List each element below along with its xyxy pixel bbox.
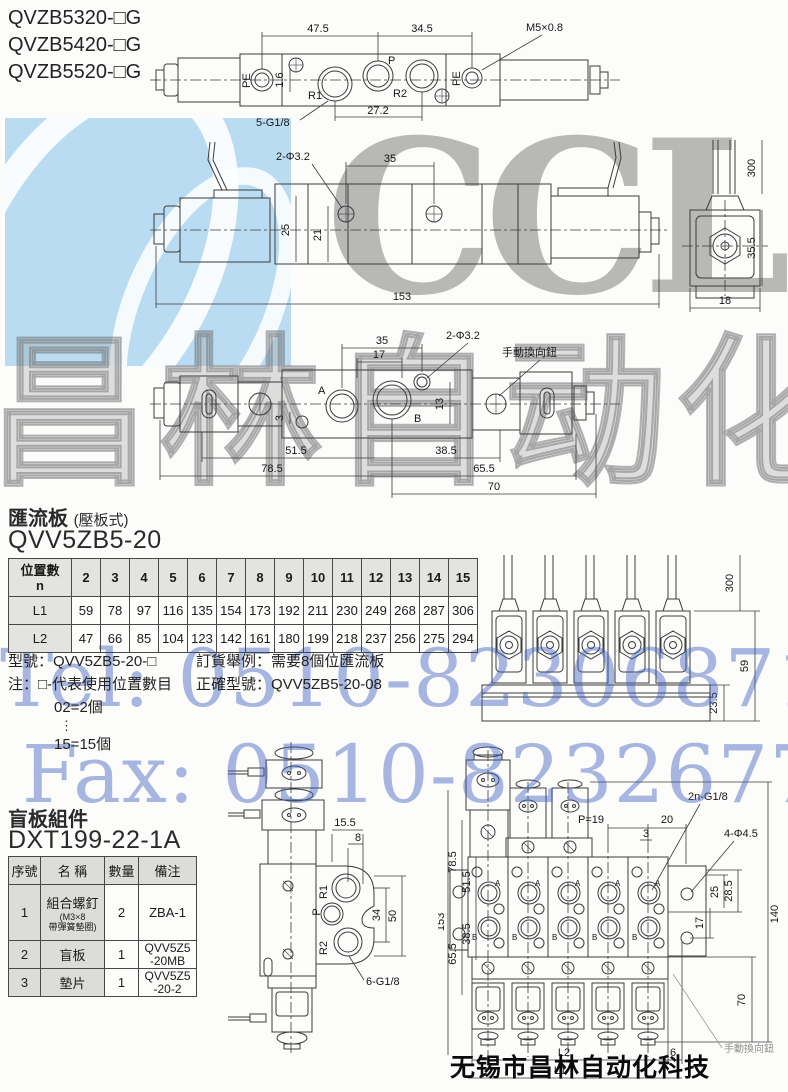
dim-label: 47.5 xyxy=(307,23,328,35)
port-label: B xyxy=(512,933,517,942)
port-label: B xyxy=(552,933,557,942)
dim-label: 65.5 xyxy=(447,943,459,964)
part-remark: -20-2 xyxy=(139,983,196,996)
order-example: 訂貨舉例：需要8個位匯流板 xyxy=(196,650,384,673)
dim-label: 17 xyxy=(373,349,385,361)
blank-plate-model: DXT199-22-1A xyxy=(8,826,181,855)
dim-label: 8 xyxy=(355,832,361,844)
dim-label: 27.2 xyxy=(367,105,388,117)
order-model: 正確型號：QVV5ZB5-20-08 xyxy=(196,673,384,696)
holes-label: 2-Φ3.2 xyxy=(276,151,310,163)
dim-label: 25 xyxy=(280,224,292,236)
holes-label: 2-Φ3.2 xyxy=(446,330,480,342)
port-label: A xyxy=(575,879,581,888)
port-label: R1 xyxy=(308,90,322,102)
dim-label: 140 xyxy=(769,905,781,923)
dim-label: 1.6 xyxy=(274,72,286,87)
dim-label: 51.5 xyxy=(285,445,306,457)
dim-label: 300 xyxy=(746,159,758,177)
model-name: QVZB5520-□G xyxy=(8,59,141,86)
dim-label: 300 xyxy=(724,574,736,592)
corner-header-cell: 位置數 n xyxy=(9,559,72,597)
dim-label: 28.5 xyxy=(723,880,735,901)
port-label: PE xyxy=(451,71,463,86)
port-label: A xyxy=(535,879,541,888)
table-row: 1 組合螺釘 (M3×8 帶彈簧墊圈) 2 ZBA-1 xyxy=(9,885,197,941)
dim-label: 38.5 xyxy=(435,445,456,457)
manual-override-label: 手動換向鈕 xyxy=(724,1042,774,1055)
dim-label: 51.5 xyxy=(461,871,473,892)
dim-label: 50 xyxy=(387,910,399,922)
ordering-notes-right: 訂貨舉例：需要8個位匯流板 正確型號：QVV5ZB5-20-08 xyxy=(196,650,384,696)
port-label: R2 xyxy=(393,88,407,100)
port-label: A xyxy=(615,879,621,888)
dim-label: 34.5 xyxy=(411,23,432,35)
port-label: A xyxy=(495,879,501,888)
port-label: PE xyxy=(241,73,253,88)
blank-plate-table: 序號 名 稱 數量 備注 1 組合螺釘 (M3×8 帶彈簧墊圈) 2 ZBA-1… xyxy=(8,856,197,997)
table-row: 3 墊片 1 QVV5Z5 -20-2 xyxy=(9,969,197,997)
part-name-sub: 帶彈簧墊圈) xyxy=(41,922,104,932)
table-row-l2: L2 47 66 85 104 123 142 161 180 199 218 … xyxy=(9,625,478,653)
dim-label: 3 xyxy=(643,828,649,840)
ports-label: 6-G1/8 xyxy=(366,976,400,988)
dim-label: 25 xyxy=(709,886,721,898)
manifold-model: QVV5ZB5-20 xyxy=(8,526,162,555)
dim-label: 70 xyxy=(736,994,748,1006)
dim-label: 21 xyxy=(312,229,324,241)
dim-label: 18 xyxy=(719,295,731,307)
valve-bottom-view-drawing: A B 35 17 2-Φ3.2 手動換向鈕 3 13 51.5 38.5 78… xyxy=(150,328,628,506)
model-list: QVZB5320-□G QVZB5420-□G QVZB5520-□G xyxy=(8,5,141,86)
dim-label: 153 xyxy=(438,913,447,931)
model-name: QVZB5320-□G xyxy=(8,5,141,32)
dim-label: 38.5 xyxy=(461,923,473,944)
part-name: 組合螺釘 xyxy=(46,896,98,911)
dim-label: 65.5 xyxy=(473,463,494,475)
part-remark: -20MB xyxy=(139,955,196,968)
part-remark: QVV5Z5 xyxy=(139,970,196,983)
holes-label: 4-Φ4.5 xyxy=(724,828,758,840)
table-header-row: 位置數 n 2 3 4 5 6 7 8 9 10 11 12 13 14 15 xyxy=(9,559,478,597)
note-line: 02=2個 xyxy=(54,696,172,719)
note-line: 15=15個 xyxy=(54,733,172,756)
note-dots: ⋮ xyxy=(60,719,172,733)
valve-top-view-drawing: PE R1 P R2 PE 47.5 34.5 M5×0.8 1.6 5-G1/… xyxy=(150,18,620,130)
valve-side-view-drawing: 35 2-Φ3.2 25 21 153 300 35.5 18 xyxy=(150,138,782,320)
port-label: P xyxy=(311,908,323,915)
dim-label: 35 xyxy=(376,335,388,347)
note-model: 型號：QVV5ZB5-20-□ xyxy=(8,650,172,673)
table-row: 2 盲板 1 QVV5Z5 -20MB xyxy=(9,941,197,969)
ports-label: 5-G1/8 xyxy=(256,117,290,129)
table-row-l1: L1 59 78 97 116 135 154 173 192 211 230 … xyxy=(9,597,478,625)
port-label: R2 xyxy=(318,941,330,955)
port-label: B xyxy=(414,413,421,425)
dim-label: 34 xyxy=(371,909,383,921)
table-header-row: 序號 名 稱 數量 備注 xyxy=(9,857,197,885)
dim-label: 17 xyxy=(694,917,706,929)
port-label: B xyxy=(592,933,597,942)
corner-line1: 位置數 xyxy=(9,563,71,578)
model-name: QVZB5420-□G xyxy=(8,32,141,59)
manifold-dimension-table: 位置數 n 2 3 4 5 6 7 8 9 10 11 12 13 14 15 … xyxy=(8,558,478,653)
port-label: B xyxy=(632,933,637,942)
dim-label: 3 xyxy=(274,415,286,421)
note-line: 注：□-代表使用位置數目 xyxy=(8,673,172,696)
ordering-notes-left: 型號：QVV5ZB5-20-□ 注：□-代表使用位置數目 02=2個 ⋮ 15=… xyxy=(8,650,172,756)
corner-line2: n xyxy=(9,578,71,593)
dim-label: 35 xyxy=(384,153,396,165)
part-remark: QVV5Z5 xyxy=(139,942,196,955)
dim-label: 78.5 xyxy=(447,851,459,872)
footer-company-name: 无锡市昌林自动化科技 xyxy=(450,1048,710,1084)
port-label: A xyxy=(318,385,326,397)
dim-label: 153 xyxy=(393,291,411,303)
thread-label: M5×0.8 xyxy=(526,22,563,34)
dim-label: 78.5 xyxy=(261,463,282,475)
port-label: P xyxy=(388,55,395,67)
dim-label: 70 xyxy=(488,481,500,493)
dim-label: 13 xyxy=(434,398,446,410)
catalog-page: CCLair 昌林自动化 Tel: 0510-82306871 Fax: 051… xyxy=(0,0,788,1092)
dim-label: 35.5 xyxy=(746,237,758,258)
part-name-sub: (M3×8 xyxy=(41,912,104,922)
manual-override-label: 手動換向鈕 xyxy=(502,345,557,359)
port-label: R1 xyxy=(318,885,330,899)
